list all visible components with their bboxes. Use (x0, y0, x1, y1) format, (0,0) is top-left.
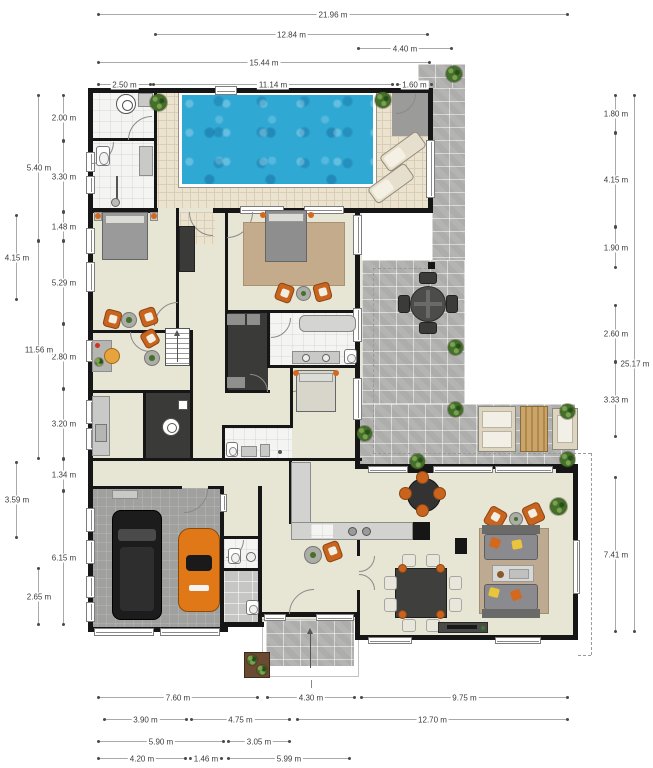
dimension: 6.15 m (63, 491, 64, 625)
dimension-label: 15.44 m (248, 59, 281, 68)
suv-car (112, 510, 162, 620)
wall-marker (428, 262, 435, 269)
plant-icon (446, 66, 462, 82)
wall-stub (455, 538, 467, 554)
dimension: 1.90 m (615, 227, 616, 268)
dimension-label: 3.59 m (3, 496, 31, 505)
toilet-icon (344, 349, 357, 364)
dimension: 3.59 m (16, 462, 17, 538)
desk-chair (104, 348, 120, 364)
wall (190, 330, 193, 458)
cooktop-icon (362, 527, 371, 536)
dimension: 2.65 m (38, 568, 39, 625)
window (86, 228, 95, 254)
outdoor-table (410, 286, 446, 322)
room-storage (224, 570, 258, 625)
dimension-label: 3.20 m (50, 420, 78, 429)
pillow (511, 539, 522, 550)
dimension: 4.20 m (98, 758, 186, 759)
window (368, 637, 412, 644)
window (86, 508, 95, 532)
dimension-label: 1.90 m (602, 243, 630, 252)
entrance-arrow (310, 634, 311, 668)
wall (225, 310, 358, 313)
side-table (144, 350, 160, 366)
window (316, 614, 354, 621)
dimension: 3.90 m (104, 719, 187, 720)
toilet-icon (96, 146, 110, 166)
dimension-label: 9.75 m (450, 694, 478, 703)
bed-pillows (268, 213, 304, 222)
dimension: 1.60 m (397, 84, 432, 85)
dining-chair (449, 576, 462, 590)
outdoor-sofa (478, 406, 516, 452)
dimension-label: 2.00 m (50, 114, 78, 123)
dimension: 4.30 m (267, 697, 355, 698)
dimension-label: 1.48 m (50, 222, 78, 231)
window (573, 540, 580, 594)
window (495, 637, 541, 644)
dining-chair (384, 598, 397, 612)
dimension-label: 21.96 m (317, 11, 350, 20)
wall (267, 365, 360, 368)
outdoor-wood-table (520, 406, 548, 452)
wall (357, 590, 360, 638)
wall (224, 568, 258, 571)
garage-door (160, 628, 220, 636)
side-table (304, 546, 322, 564)
plant-icon (448, 402, 463, 417)
window (264, 614, 286, 621)
sink-cabinet (241, 446, 257, 457)
car-windshield (186, 555, 212, 571)
outdoor-chair (446, 295, 458, 313)
desk-lamp-icon (95, 343, 100, 348)
plant-icon (95, 358, 103, 366)
bathtub-icon (299, 315, 356, 332)
dimension: 5.90 m (98, 741, 224, 742)
bed-pillows (105, 215, 145, 224)
washer-icon (116, 94, 136, 114)
sports-car (178, 528, 220, 612)
stairs-arrow (177, 334, 178, 362)
cushion (482, 431, 512, 448)
dimension-label: 5.99 m (275, 755, 303, 764)
dimension: 1.34 m (63, 459, 64, 491)
dimension-label: 4.15 m (3, 253, 31, 262)
window (86, 540, 95, 564)
dimension-label: 3.30 m (50, 172, 78, 181)
side-table (509, 512, 523, 526)
dimension: 3.33 m (615, 362, 616, 437)
dimension-label: 3.05 m (245, 738, 273, 747)
window (86, 176, 95, 194)
dimension-label: 1.46 m (192, 755, 220, 764)
bathroom-cabinet (260, 444, 270, 457)
shower-head-icon (111, 198, 120, 207)
property-line (591, 453, 592, 655)
window (433, 466, 493, 473)
wall-stub (413, 522, 430, 540)
bed (102, 212, 148, 260)
closet-cabinet (227, 377, 245, 388)
dimension-label: 12.70 m (416, 716, 449, 725)
dimension-label: 3.33 m (602, 395, 630, 404)
lamp-icon (260, 212, 266, 218)
dimension: 11.14 m (153, 84, 393, 85)
car-windshield (118, 529, 156, 541)
window (368, 466, 408, 473)
coffee-table (492, 565, 534, 582)
window (86, 602, 95, 622)
cushion (557, 415, 573, 443)
window (495, 466, 553, 473)
dimension-label: 4.15 m (602, 176, 630, 185)
cushion (482, 411, 512, 428)
dimension: 15.44 m (98, 62, 430, 63)
dimension: 4.15 m (615, 133, 616, 227)
wall (222, 425, 292, 428)
toilet-icon (228, 548, 241, 564)
wall (88, 458, 362, 461)
dimension-label: 5.29 m (50, 278, 78, 287)
floor-plan: 21.96 m 12.84 m 4.40 m 15.44 m 2.50 m 11… (0, 0, 653, 768)
dimension: 2.50 m (98, 84, 151, 85)
washer-icon (162, 418, 180, 436)
wall (357, 540, 360, 556)
garage-door (94, 628, 154, 636)
plant-icon (247, 655, 257, 665)
side-table (121, 312, 137, 328)
dining-chair (384, 576, 397, 590)
tv-icon (447, 625, 477, 629)
plant-icon (560, 404, 575, 419)
chair (399, 487, 412, 500)
dimension-label: 7.60 m (164, 694, 192, 703)
dimension: 5.29 m (63, 241, 64, 324)
shower-icon (278, 450, 282, 454)
dimension-label: 1.80 m (602, 110, 630, 119)
wall (88, 390, 193, 393)
dimension: 4.75 m (191, 719, 290, 720)
dimension-label: 4.75 m (226, 716, 254, 725)
outdoor-chair (419, 322, 437, 334)
extension-tick (311, 680, 312, 688)
dimension-label: 5.90 m (147, 738, 175, 747)
seat-cushion (436, 564, 445, 573)
plant-icon (357, 426, 372, 441)
plant-icon (410, 454, 425, 469)
dimension: 2.00 m (63, 95, 64, 141)
lamp-icon (151, 213, 157, 219)
dimension-label: 2.60 m (602, 329, 630, 338)
property-line (373, 268, 432, 269)
bed (296, 370, 336, 412)
window (86, 262, 95, 292)
dimension: 4.15 m (16, 215, 17, 300)
dimension: 2.80 m (63, 324, 64, 389)
lamp-icon (95, 213, 101, 219)
dimension-label: 4.20 m (128, 755, 156, 764)
plant-icon (481, 626, 485, 630)
dimension: 9.75 m (361, 697, 568, 698)
seat-cushion (398, 564, 407, 573)
dimension: 5.40 m (38, 95, 39, 241)
dimension-label: 2.65 m (25, 592, 53, 601)
cooktop-icon (348, 527, 357, 536)
wall (143, 392, 146, 458)
chair (416, 471, 429, 484)
garage-cabinet (112, 490, 138, 499)
property-line (578, 655, 591, 656)
sink-icon (246, 552, 256, 562)
patio-east-strip (432, 88, 465, 262)
dimension-label: 25.17 m (619, 359, 652, 368)
property-line (373, 453, 591, 454)
stairs-arrow-head (174, 330, 180, 336)
lamp-icon (293, 370, 299, 376)
dimension-label: 11.56 m (23, 346, 55, 355)
window (215, 86, 237, 95)
plant-icon (448, 340, 463, 355)
window (426, 140, 435, 198)
sofa-back (482, 609, 540, 618)
wall (224, 536, 258, 539)
dimension-right-total: 25.17 m (634, 95, 635, 632)
plant-icon (257, 665, 267, 675)
vanity (292, 351, 340, 364)
sink-icon (322, 354, 330, 362)
plant-icon (550, 498, 567, 515)
window (353, 215, 362, 255)
dimension: 7.60 m (98, 697, 258, 698)
planter-box (244, 652, 270, 678)
dimension: 1.80 m (615, 95, 616, 133)
car-detail (189, 585, 209, 591)
wall (222, 425, 225, 461)
lamp-icon (333, 370, 339, 376)
wardrobe (179, 226, 195, 272)
dimension-label: 4.40 m (391, 45, 419, 54)
outdoor-chair (419, 272, 437, 284)
dimension: 1.48 m (63, 212, 64, 241)
closet-cabinet (227, 314, 245, 325)
dimension-label: 7.41 m (602, 550, 630, 559)
decor (497, 571, 504, 578)
dimension: 5.99 m (228, 758, 350, 759)
dimension-top-total: 21.96 m (98, 14, 568, 15)
dimension-label: 2.50 m (110, 81, 138, 90)
swimming-pool (179, 92, 376, 187)
dimension: 11.56 m (38, 241, 39, 459)
window (353, 378, 362, 420)
master-bed (265, 210, 307, 262)
toilet-icon (246, 600, 259, 615)
door-gap (220, 494, 227, 512)
seat-cushion (398, 610, 407, 619)
dimension: 3.05 m (228, 741, 290, 742)
dimension: 3.20 m (63, 389, 64, 459)
tv-cabinet (438, 622, 488, 633)
dining-chair (402, 619, 416, 632)
dining-chair (449, 598, 462, 612)
sink-icon (95, 424, 107, 442)
dimension: 3.30 m (63, 141, 64, 212)
sofa-back (482, 525, 540, 534)
dimension-label: 1.60 m (400, 81, 428, 90)
plant-icon (375, 92, 391, 108)
dimension-label: 3.90 m (131, 716, 159, 725)
bed-pillows (299, 373, 333, 382)
dimension: 4.40 m (358, 48, 452, 49)
car-roof (120, 547, 154, 611)
chair (433, 487, 446, 500)
dimension-label: 6.15 m (50, 554, 78, 563)
closet-cabinet (247, 314, 260, 325)
dimension-label: 12.84 m (275, 31, 308, 40)
wall (290, 368, 293, 428)
dimension: 12.70 m (297, 719, 568, 720)
dimension: 7.41 m (615, 477, 616, 632)
property-line (373, 268, 374, 453)
dimension-label: 1.34 m (50, 471, 78, 480)
sink-icon (302, 354, 310, 362)
dimension: 1.46 m (190, 758, 222, 759)
tray (509, 569, 529, 579)
chair (416, 504, 429, 517)
wall (267, 312, 270, 366)
table-detail (414, 302, 441, 305)
appliance-icon (178, 400, 188, 410)
side-table (296, 286, 311, 301)
toilet-icon (226, 442, 238, 457)
dimension-label: 11.14 m (257, 81, 289, 90)
dimension-label: 4.30 m (297, 694, 325, 703)
bathroom-cabinet (139, 146, 153, 176)
counter-white-section (311, 524, 333, 538)
dimension: 2.60 m (615, 305, 616, 362)
entrance-arrow-head (307, 628, 313, 634)
window (86, 576, 95, 598)
outdoor-chair (398, 295, 410, 313)
plant-icon (560, 452, 575, 467)
patio-dining (362, 260, 465, 406)
lamp-icon (308, 212, 314, 218)
dimension: 12.84 m (155, 34, 428, 35)
room-mudroom (224, 488, 258, 538)
plant-icon (150, 94, 167, 111)
wall (88, 486, 182, 489)
seat-cushion (436, 610, 445, 619)
